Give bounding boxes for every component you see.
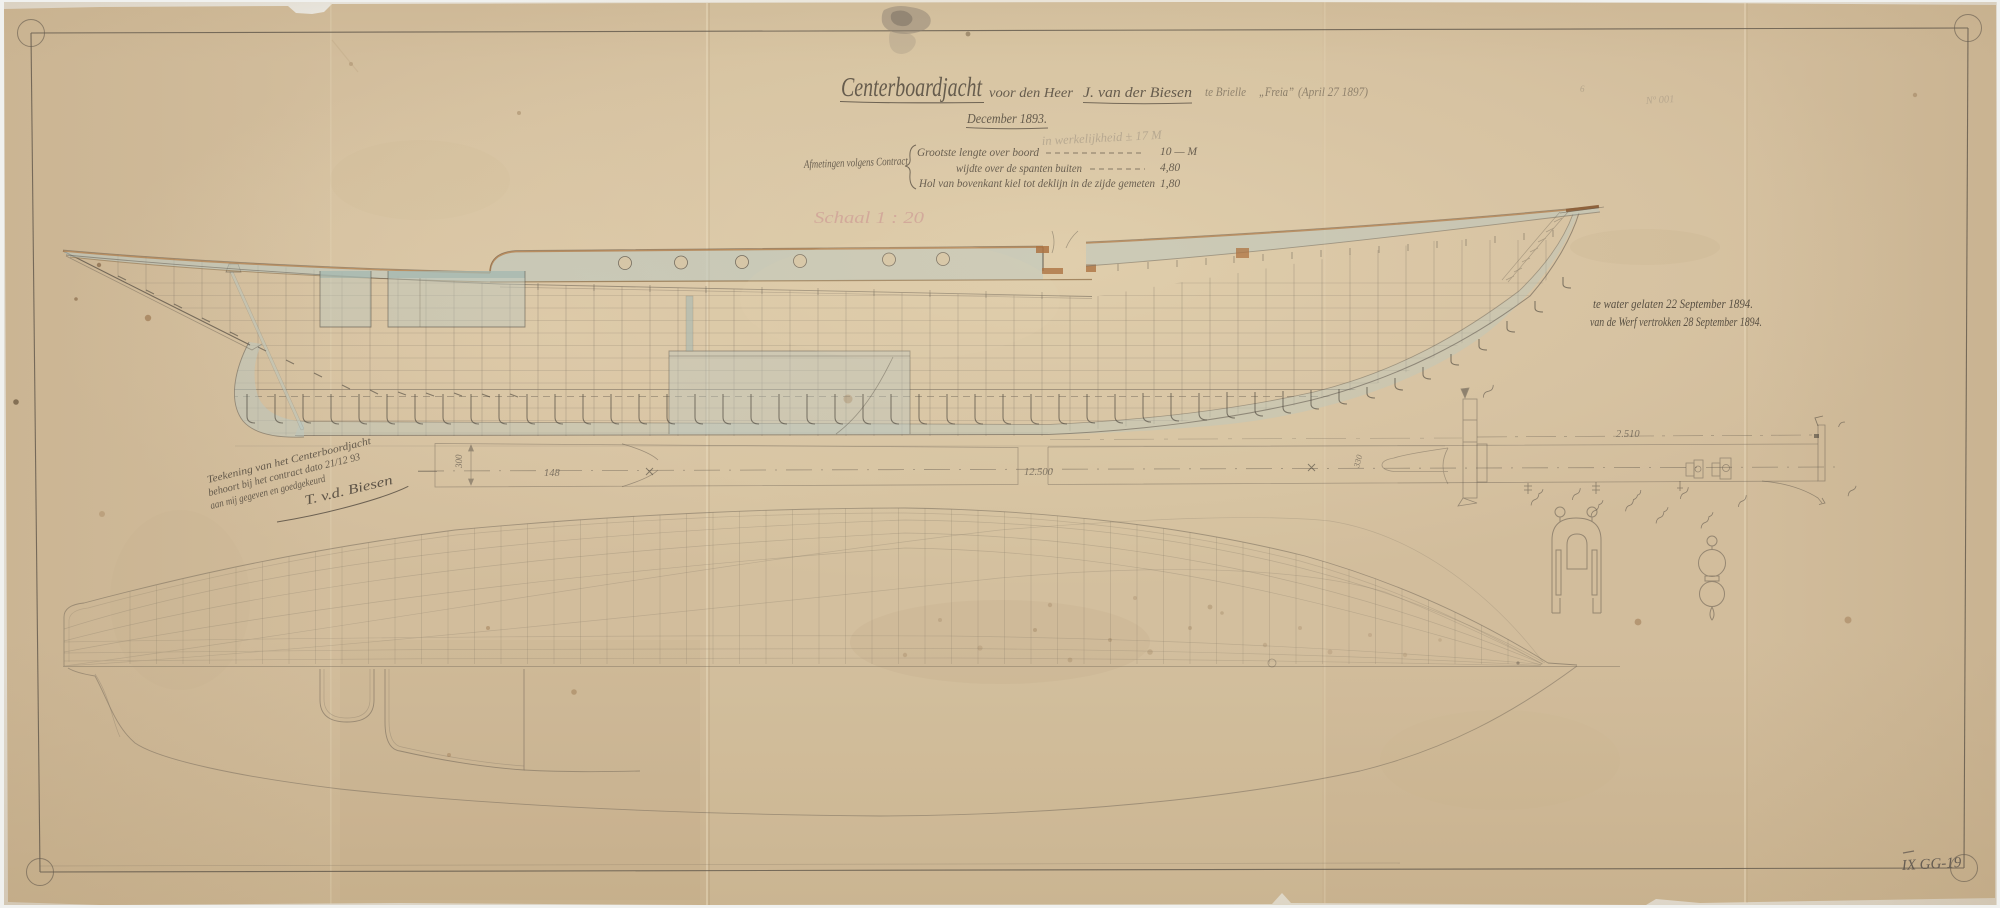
svg-text:December 1893.: December 1893. [966,112,1047,127]
svg-text:Hol van bovenkant kiel tot dek: Hol van bovenkant kiel tot deklijn in de… [918,178,1155,190]
svg-text:148: 148 [544,468,561,479]
svg-text:te Brielle: te Brielle [1205,85,1246,99]
svg-text:10 — M: 10 — M [1160,146,1198,158]
svg-text:IX GG-19: IX GG-19 [1900,855,1962,874]
svg-text:4,80: 4,80 [1160,162,1180,174]
svg-text:12.500: 12.500 [1024,467,1054,478]
svg-text:te water gelaten 22 September: te water gelaten 22 September 1894. [1593,296,1753,311]
svg-text:Nº 001: Nº 001 [1644,94,1674,107]
svg-text:van de Werf vertrokken 28 Sept: van de Werf vertrokken 28 September 1894… [1590,314,1762,329]
svg-text:J. van der Biesen: J. van der Biesen [1083,85,1192,101]
svg-text:300: 300 [454,454,464,469]
svg-text:1,80: 1,80 [1160,178,1180,190]
svg-text:wijdte over de spanten buiten: wijdte over de spanten buiten [956,163,1082,175]
svg-text:Centerboardjacht: Centerboardjacht [841,72,983,102]
svg-text:Grootste lengte over boord: Grootste lengte over boord [917,147,1039,159]
svg-text:„Freia”: „Freia” [1259,85,1294,99]
svg-text:Schaal 1 : 20: Schaal 1 : 20 [814,208,925,227]
svg-text:voor den Heer: voor den Heer [989,85,1074,100]
svg-text:(April 27 1897): (April 27 1897) [1298,85,1368,99]
svg-text:2.510: 2.510 [1616,429,1640,440]
svg-text:6: 6 [1580,84,1585,94]
